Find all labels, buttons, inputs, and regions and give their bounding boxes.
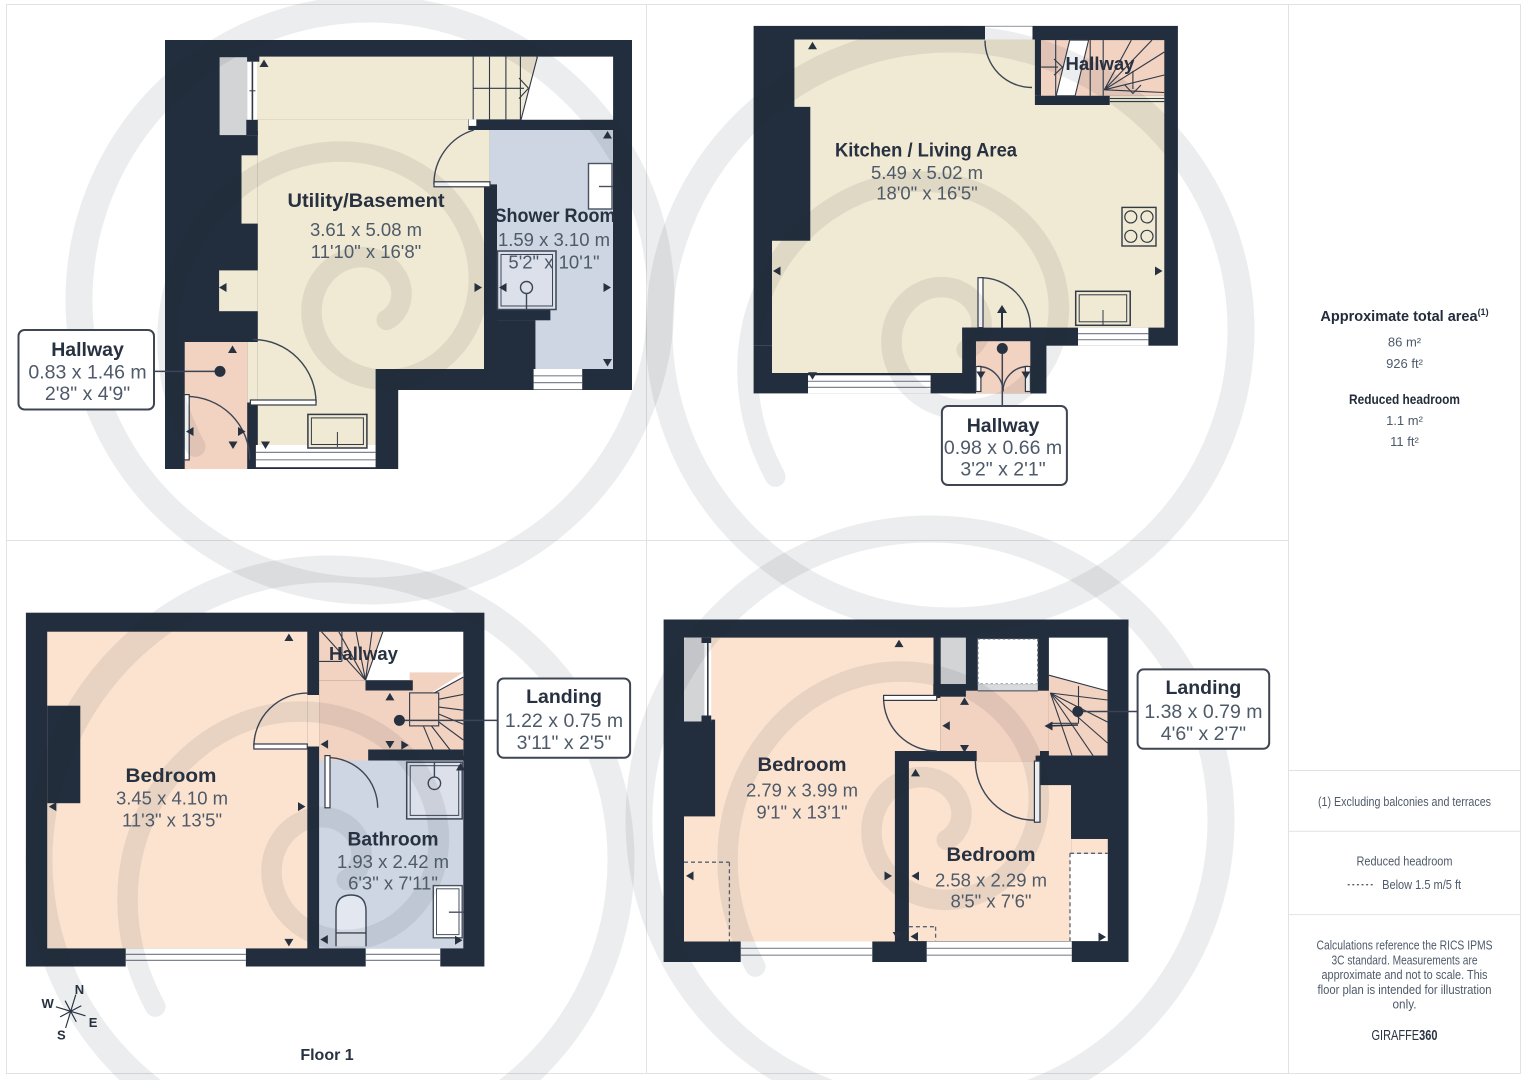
svg-text:926 ft²: 926 ft² (1386, 356, 1424, 371)
svg-text:3'2" x 2'1": 3'2" x 2'1" (960, 459, 1045, 481)
svg-text:N: N (75, 982, 84, 997)
svg-text:Bedroom: Bedroom (126, 765, 217, 787)
svg-text:E: E (89, 1015, 98, 1030)
svg-text:1.1 m²: 1.1 m² (1386, 413, 1424, 428)
svg-text:5'2" x 10'1": 5'2" x 10'1" (508, 252, 599, 273)
svg-text:(1) Excluding balconies and te: (1) Excluding balconies and terraces (1318, 794, 1491, 809)
svg-text:3.45 x 4.10 m: 3.45 x 4.10 m (116, 788, 228, 809)
svg-text:Shower Room: Shower Room (495, 205, 616, 227)
svg-text:Landing: Landing (1165, 677, 1241, 699)
svg-text:0.83 x 1.46 m: 0.83 x 1.46 m (28, 362, 146, 384)
svg-text:3C standard. Measurements are: 3C standard. Measurements are (1332, 952, 1478, 967)
svg-text:only.: only. (1393, 997, 1417, 1012)
svg-text:Reduced headroom: Reduced headroom (1357, 854, 1453, 869)
svg-text:11'3" x 13'5": 11'3" x 13'5" (122, 810, 222, 831)
svg-text:3.61 x 5.08 m: 3.61 x 5.08 m (310, 219, 422, 240)
svg-text:S: S (57, 1028, 66, 1043)
svg-text:Hallway: Hallway (51, 339, 124, 361)
svg-text:Hallway: Hallway (1066, 53, 1136, 74)
svg-text:approximate and not to scale.: approximate and not to scale. This (1322, 967, 1488, 982)
svg-text:2'8" x 4'9": 2'8" x 4'9" (45, 383, 130, 405)
svg-text:Kitchen / Living Area: Kitchen / Living Area (835, 140, 1017, 162)
svg-text:86 m²: 86 m² (1388, 335, 1422, 350)
svg-text:1.38 x 0.79 m: 1.38 x 0.79 m (1144, 701, 1262, 723)
svg-text:1.59 x 3.10 m: 1.59 x 3.10 m (498, 229, 610, 250)
svg-text:2.79 x 3.99 m: 2.79 x 3.99 m (746, 780, 858, 801)
svg-text:Bathroom: Bathroom (348, 829, 439, 851)
svg-text:3'11" x 2'5": 3'11" x 2'5" (517, 732, 612, 754)
svg-text:2.58 x 2.29 m: 2.58 x 2.29 m (935, 869, 1047, 890)
svg-text:11'10" x 16'8": 11'10" x 16'8" (311, 241, 421, 262)
svg-text:Utility/Basement: Utility/Basement (288, 190, 446, 212)
svg-text:Floor 1: Floor 1 (300, 1047, 353, 1064)
svg-text:Hallway: Hallway (967, 415, 1040, 437)
svg-text:floor plan is intended for ill: floor plan is intended for illustration (1318, 982, 1492, 997)
svg-text:Bedroom: Bedroom (947, 844, 1036, 866)
svg-text:Bedroom: Bedroom (758, 754, 847, 776)
svg-text:0.98 x 0.66 m: 0.98 x 0.66 m (944, 437, 1062, 459)
svg-text:Approximate total area(1): Approximate total area(1) (1320, 307, 1488, 325)
svg-text:4'6" x 2'7": 4'6" x 2'7" (1161, 723, 1246, 745)
svg-text:Hallway: Hallway (329, 643, 399, 664)
svg-text:6'3" x 7'11": 6'3" x 7'11" (348, 873, 438, 894)
svg-text:11 ft²: 11 ft² (1390, 434, 1419, 449)
svg-text:Calculations reference the RIC: Calculations reference the RICS IPMS (1317, 938, 1493, 953)
svg-text:1.22 x 0.75 m: 1.22 x 0.75 m (505, 710, 623, 732)
svg-text:Below 1.5 m/5 ft: Below 1.5 m/5 ft (1382, 877, 1461, 892)
svg-text:W: W (42, 996, 55, 1011)
svg-text:5.49 x 5.02 m: 5.49 x 5.02 m (871, 162, 983, 183)
svg-text:1.93 x 2.42 m: 1.93 x 2.42 m (337, 851, 449, 872)
svg-text:8'5" x 7'6": 8'5" x 7'6" (951, 890, 1032, 911)
svg-text:GIRAFFE360: GIRAFFE360 (1372, 1028, 1438, 1044)
svg-text:9'1" x 13'1": 9'1" x 13'1" (756, 801, 847, 822)
svg-text:18'0" x 16'5": 18'0" x 16'5" (876, 183, 977, 204)
svg-text:Landing: Landing (526, 686, 602, 708)
svg-text:Reduced headroom: Reduced headroom (1349, 391, 1460, 407)
